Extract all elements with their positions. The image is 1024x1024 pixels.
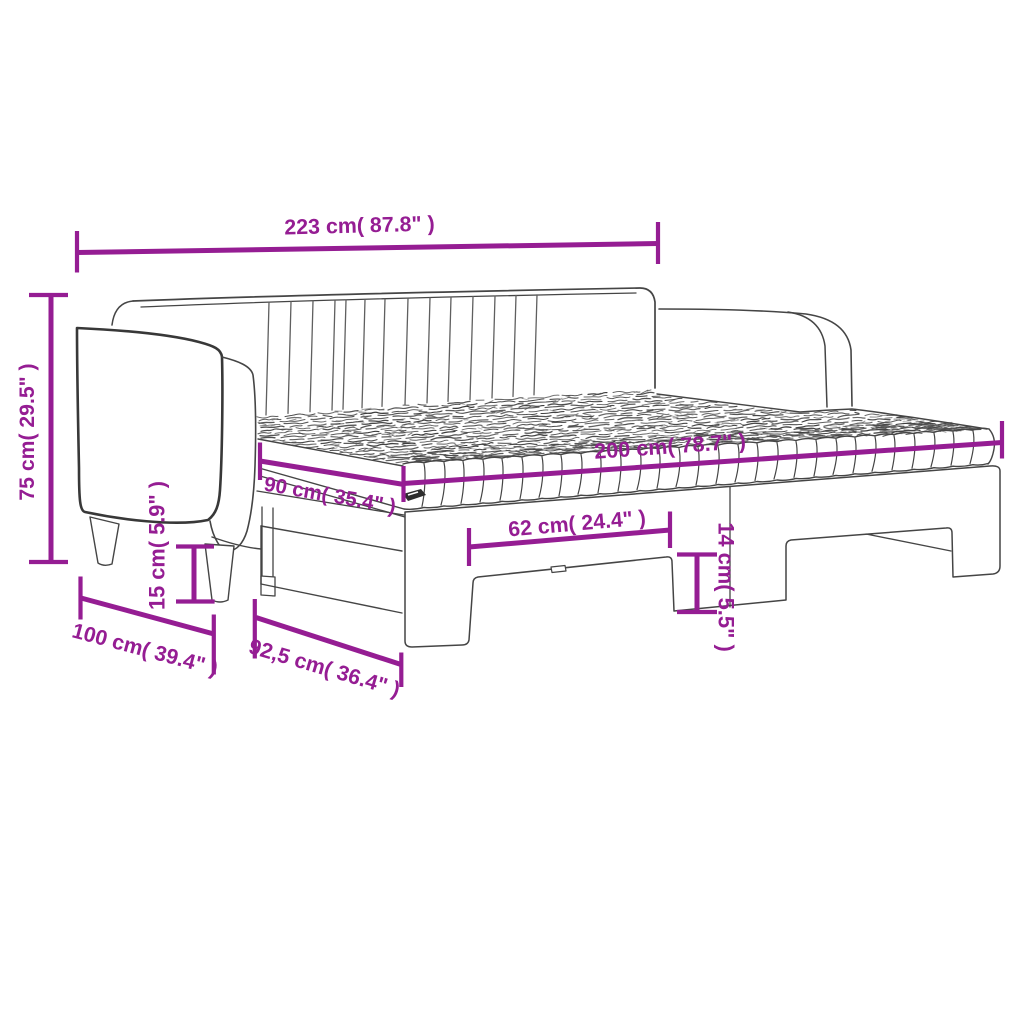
svg-text:14 cm( 5.5" ): 14 cm( 5.5" )	[714, 522, 739, 652]
svg-text:15 cm( 5.9" ): 15 cm( 5.9" )	[145, 481, 170, 610]
svg-text:75 cm( 29.5" ): 75 cm( 29.5" )	[16, 363, 39, 500]
svg-text:223 cm( 87.8" ): 223 cm( 87.8" )	[284, 212, 435, 240]
